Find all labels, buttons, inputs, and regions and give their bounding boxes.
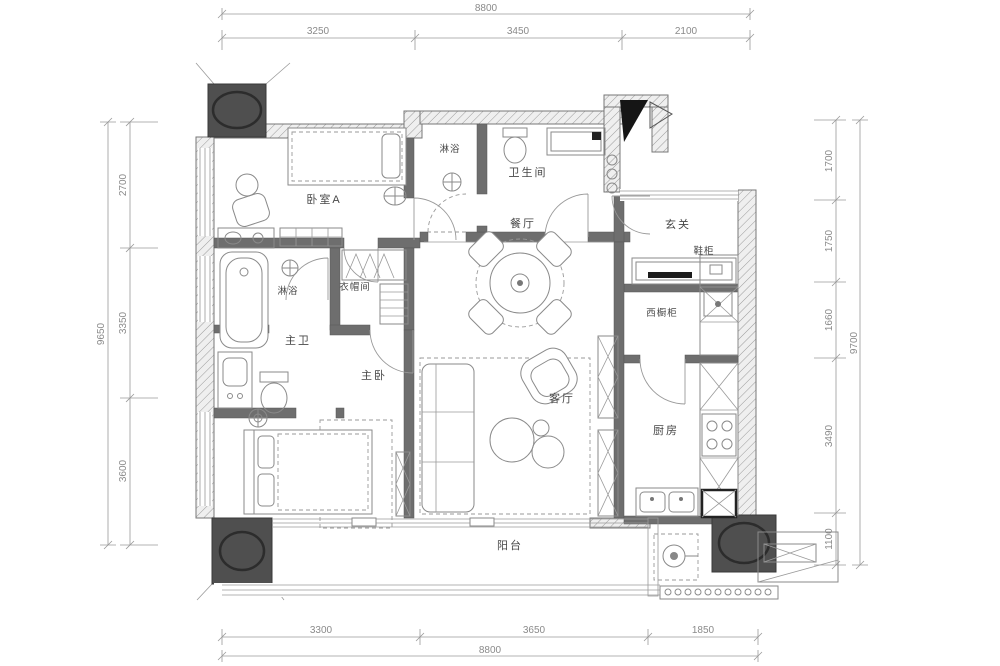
dim-right-seg-2: 1750: [824, 229, 835, 252]
kitchen-stove: [702, 414, 736, 456]
shower-head-icon: [443, 173, 461, 191]
door-kitchen: [640, 359, 685, 404]
closet-wardrobe-top: [342, 250, 406, 280]
wall-wc-bottom-a: [420, 232, 428, 242]
vent-strip: [660, 586, 778, 599]
room-label-shower-top: 淋浴: [439, 143, 460, 155]
wall-right: [738, 190, 756, 520]
dim-bottom-seg-3: 1850: [692, 625, 715, 636]
dim-top-total: 8800: [475, 3, 498, 14]
door-wc: [545, 194, 588, 237]
kitchen-sink: [636, 488, 698, 516]
shoe-cabinet: [632, 258, 736, 284]
bedroom-a-side-table: [236, 174, 258, 196]
balcony-washer: [654, 534, 698, 580]
floor-plan-page: 8800 3250 3450 2100 3300 3650 1850 8800 …: [0, 0, 1000, 666]
room-label-closet: 衣帽间: [339, 281, 371, 293]
master-toilet-tank: [260, 372, 288, 382]
wall-bath-bottom-stub: [336, 408, 344, 418]
wall-top-step: [404, 111, 422, 138]
shower-top-room: [443, 173, 461, 191]
room-label-balcony: 阳台: [497, 538, 523, 552]
dim-right-seg-5: 1100: [824, 528, 835, 550]
master-shower-head-icon: [282, 260, 298, 276]
kitchen-furniture: [636, 363, 738, 517]
dim-left-seg-3: 3600: [118, 459, 129, 482]
sliding-door-handle-2: [470, 518, 494, 526]
wall-westcab-kitchen-a: [624, 355, 640, 363]
dim-top-seg-1: 3250: [307, 26, 330, 37]
wall-entry-bottom: [624, 284, 738, 292]
dimension-bottom: 3300 3650 1850 8800: [218, 625, 762, 662]
room-label-dining: 餐厅: [510, 216, 536, 230]
window-masterbed-left: [198, 412, 212, 506]
wall-westcab-kitchen-b: [685, 355, 738, 363]
wall-masterbed-living: [404, 330, 414, 518]
wc-toilet-bowl: [504, 137, 526, 163]
shaft-wall-right: [652, 107, 668, 152]
corner-tick-bottom-left-a: [197, 584, 212, 600]
dimension-top: 8800 3250 3450 2100: [218, 3, 754, 50]
dim-top-seg-2: 3450: [507, 26, 530, 37]
wall-top-bath: [420, 111, 630, 124]
bedroom-a-furniture: [218, 128, 406, 248]
room-label-entry: 玄关: [665, 217, 691, 231]
living-furniture: [420, 336, 618, 516]
dim-bottom-total: 8800: [479, 645, 502, 656]
dim-bottom-seg-1: 3300: [310, 625, 333, 636]
master-bed: [244, 430, 372, 514]
bathtub: [220, 252, 268, 348]
dim-right-total: 9700: [849, 331, 860, 354]
room-label-master-bath: 主卫: [285, 334, 311, 347]
living-coffee-table-3: [533, 420, 549, 436]
ceiling-fan-icon: [249, 409, 267, 427]
floor-plan-drawing: 8800 3250 3450 2100 3300 3650 1850 8800 …: [0, 0, 1000, 666]
master-vanity: [218, 352, 252, 408]
dim-left-seg-2: 3350: [118, 311, 129, 334]
dim-left-total: 9650: [96, 322, 107, 345]
living-sofa: [422, 364, 474, 512]
dim-top-seg-3: 2100: [675, 26, 698, 37]
window-entry-top: [620, 189, 738, 201]
wall-shower-wc-stub: [477, 226, 487, 232]
dim-left-seg-1: 2700: [118, 173, 129, 196]
dim-bottom-seg-2: 3650: [523, 625, 546, 636]
ceiling-fixture-icon: [384, 187, 406, 205]
wc-room: [503, 128, 605, 163]
corner-tick-top-left-b: [266, 63, 290, 84]
entry-furniture: [632, 258, 736, 284]
room-label-shoe-cabinet: 鞋柜: [693, 245, 714, 257]
room-label-living: 客厅: [549, 391, 575, 405]
room-label-west-cabinet: 西橱柜: [646, 307, 678, 319]
living-coffee-table-1: [490, 418, 534, 462]
shaft-wall-left: [604, 95, 620, 192]
master-bedroom-furniture: [244, 409, 410, 528]
wc-toilet-tank: [503, 128, 527, 137]
room-label-master-bedroom: 主卧: [361, 369, 387, 382]
dining-table-dot: [517, 280, 523, 286]
room-label-kitchen: 厨房: [653, 424, 679, 437]
window-bath-left: [198, 256, 212, 322]
master-bath-furniture: [218, 252, 298, 413]
corner-tick-top-left-a: [196, 63, 214, 84]
dim-right-seg-1: 1700: [824, 149, 835, 172]
dim-right-seg-3: 1660: [824, 308, 835, 331]
window-bedroom-a-left: [198, 148, 212, 236]
wc-washer: [547, 128, 605, 155]
bedroom-a-chair: [231, 191, 272, 228]
room-label-bedroom-a: 卧室A: [306, 192, 341, 206]
living-coffee-table-2: [532, 436, 564, 468]
north-flag-icon: [620, 100, 648, 142]
balcony-rail-bottom: [214, 583, 660, 597]
wall-entry-dining: [614, 196, 624, 242]
dim-right-seg-4: 3490: [824, 424, 835, 447]
wall-shower-wc: [477, 124, 487, 194]
wall-closet-bottom: [330, 325, 370, 335]
dimension-left: 2700 3350 3600 9650: [96, 118, 158, 549]
dimension-right: 1700 1750 1660 3490 1100 9700: [814, 116, 868, 569]
kitchen-flue: [702, 490, 736, 517]
door-shower-top: [428, 194, 466, 232]
wall-living-kitchen: [614, 242, 624, 518]
sliding-door-handle-1: [352, 518, 376, 526]
bedroom-a-bed: [288, 128, 406, 185]
room-label-master-shower: 淋浴: [277, 285, 298, 297]
room-label-wc: 卫生间: [509, 165, 548, 179]
doors: [286, 194, 685, 404]
